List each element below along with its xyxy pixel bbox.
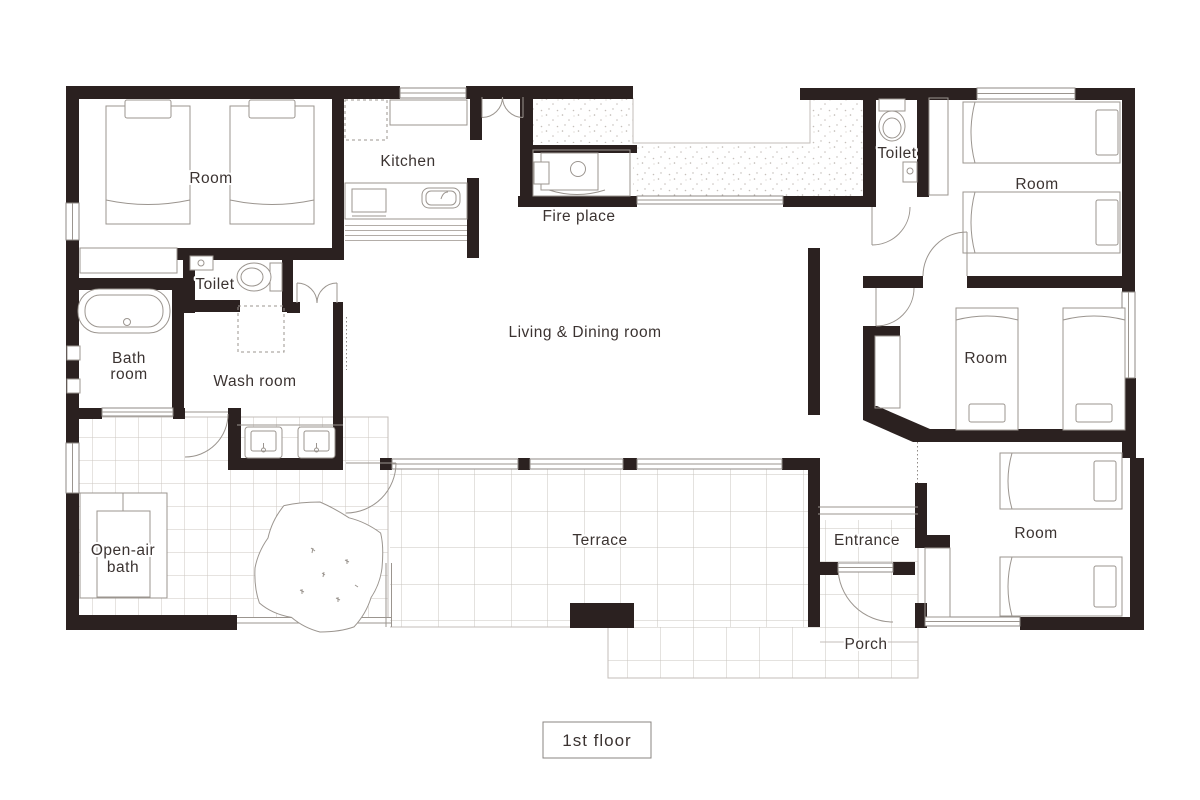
bed-icon [1000,453,1122,509]
door-arc [482,97,523,118]
wood-stove-icon [541,153,598,190]
kitchen-sink-icon [422,188,460,208]
label-porch: Porch [845,636,888,653]
floor-plan-page: Room Kitchen Fire place Toilet Toilet Ro… [0,0,1200,800]
label-wash-room: Wash room [213,373,296,390]
terrace-step [570,603,634,628]
label-room-bottom-right: Room [1014,525,1057,542]
label-kitchen: Kitchen [380,153,435,170]
label-open-air-bath-line2: bath [107,559,139,576]
door-arc [876,288,914,326]
kitchen-shelf-hatch [390,100,467,125]
label-room-top-right: Room [1015,176,1058,193]
label-toilet-left: Toilet [195,276,234,293]
label-toilet-right: Toilet [877,145,916,162]
sliding-door-symbol [392,459,518,469]
sliding-door-symbol [637,459,782,469]
front-door-symbol [838,563,893,572]
porch-apron-tiles [608,627,818,678]
bed-icon [963,102,1120,163]
window-symbol [977,88,1075,99]
window-symbol [102,408,173,416]
bed-icon [956,308,1018,430]
bed-icon [230,100,314,224]
window-symbol [66,443,79,493]
window-symbol [925,617,1020,626]
label-living-dining: Living & Dining room [508,324,661,341]
floor-title-text: 1st floor [562,731,631,750]
label-bath-room-line2: room [110,366,147,383]
shoji-screen-hatch [929,98,948,195]
bed-icon [106,100,190,224]
kitchen-counter-hatch [345,221,467,243]
bed-icon [963,192,1120,253]
bed-icon [1000,557,1122,616]
floor-title: 1st floor [543,722,651,758]
bed-icon [1063,308,1125,430]
refrigerator-icon [345,100,387,140]
closet-hatch [925,548,950,617]
washroom-dashed-square [238,306,284,352]
door-arc [297,283,337,303]
window-symbol [637,196,783,204]
fireplace [533,150,630,196]
window-symbol [400,88,466,98]
sliding-door-symbol [530,459,623,469]
label-entrance: Entrance [834,532,900,549]
label-fire-place: Fire place [542,208,615,225]
label-room-mid-right: Room [964,350,1007,367]
toilet-icon [879,99,917,182]
label-room-top-left: Room [189,170,232,187]
label-open-air-bath-line1: Open-air [91,542,155,559]
door-arc [872,207,910,245]
floor-plan-svg: Room Kitchen Fire place Toilet Toilet Ro… [0,0,1200,800]
closet-hatch [875,336,900,408]
entrance-step-lines [818,507,918,514]
label-bath-room-line1: Bath [112,350,146,367]
window-symbol [66,203,79,240]
closet-hatch [80,248,177,273]
door-arc [923,232,967,276]
kitchen-counter [345,183,467,219]
label-terrace: Terrace [572,532,627,549]
